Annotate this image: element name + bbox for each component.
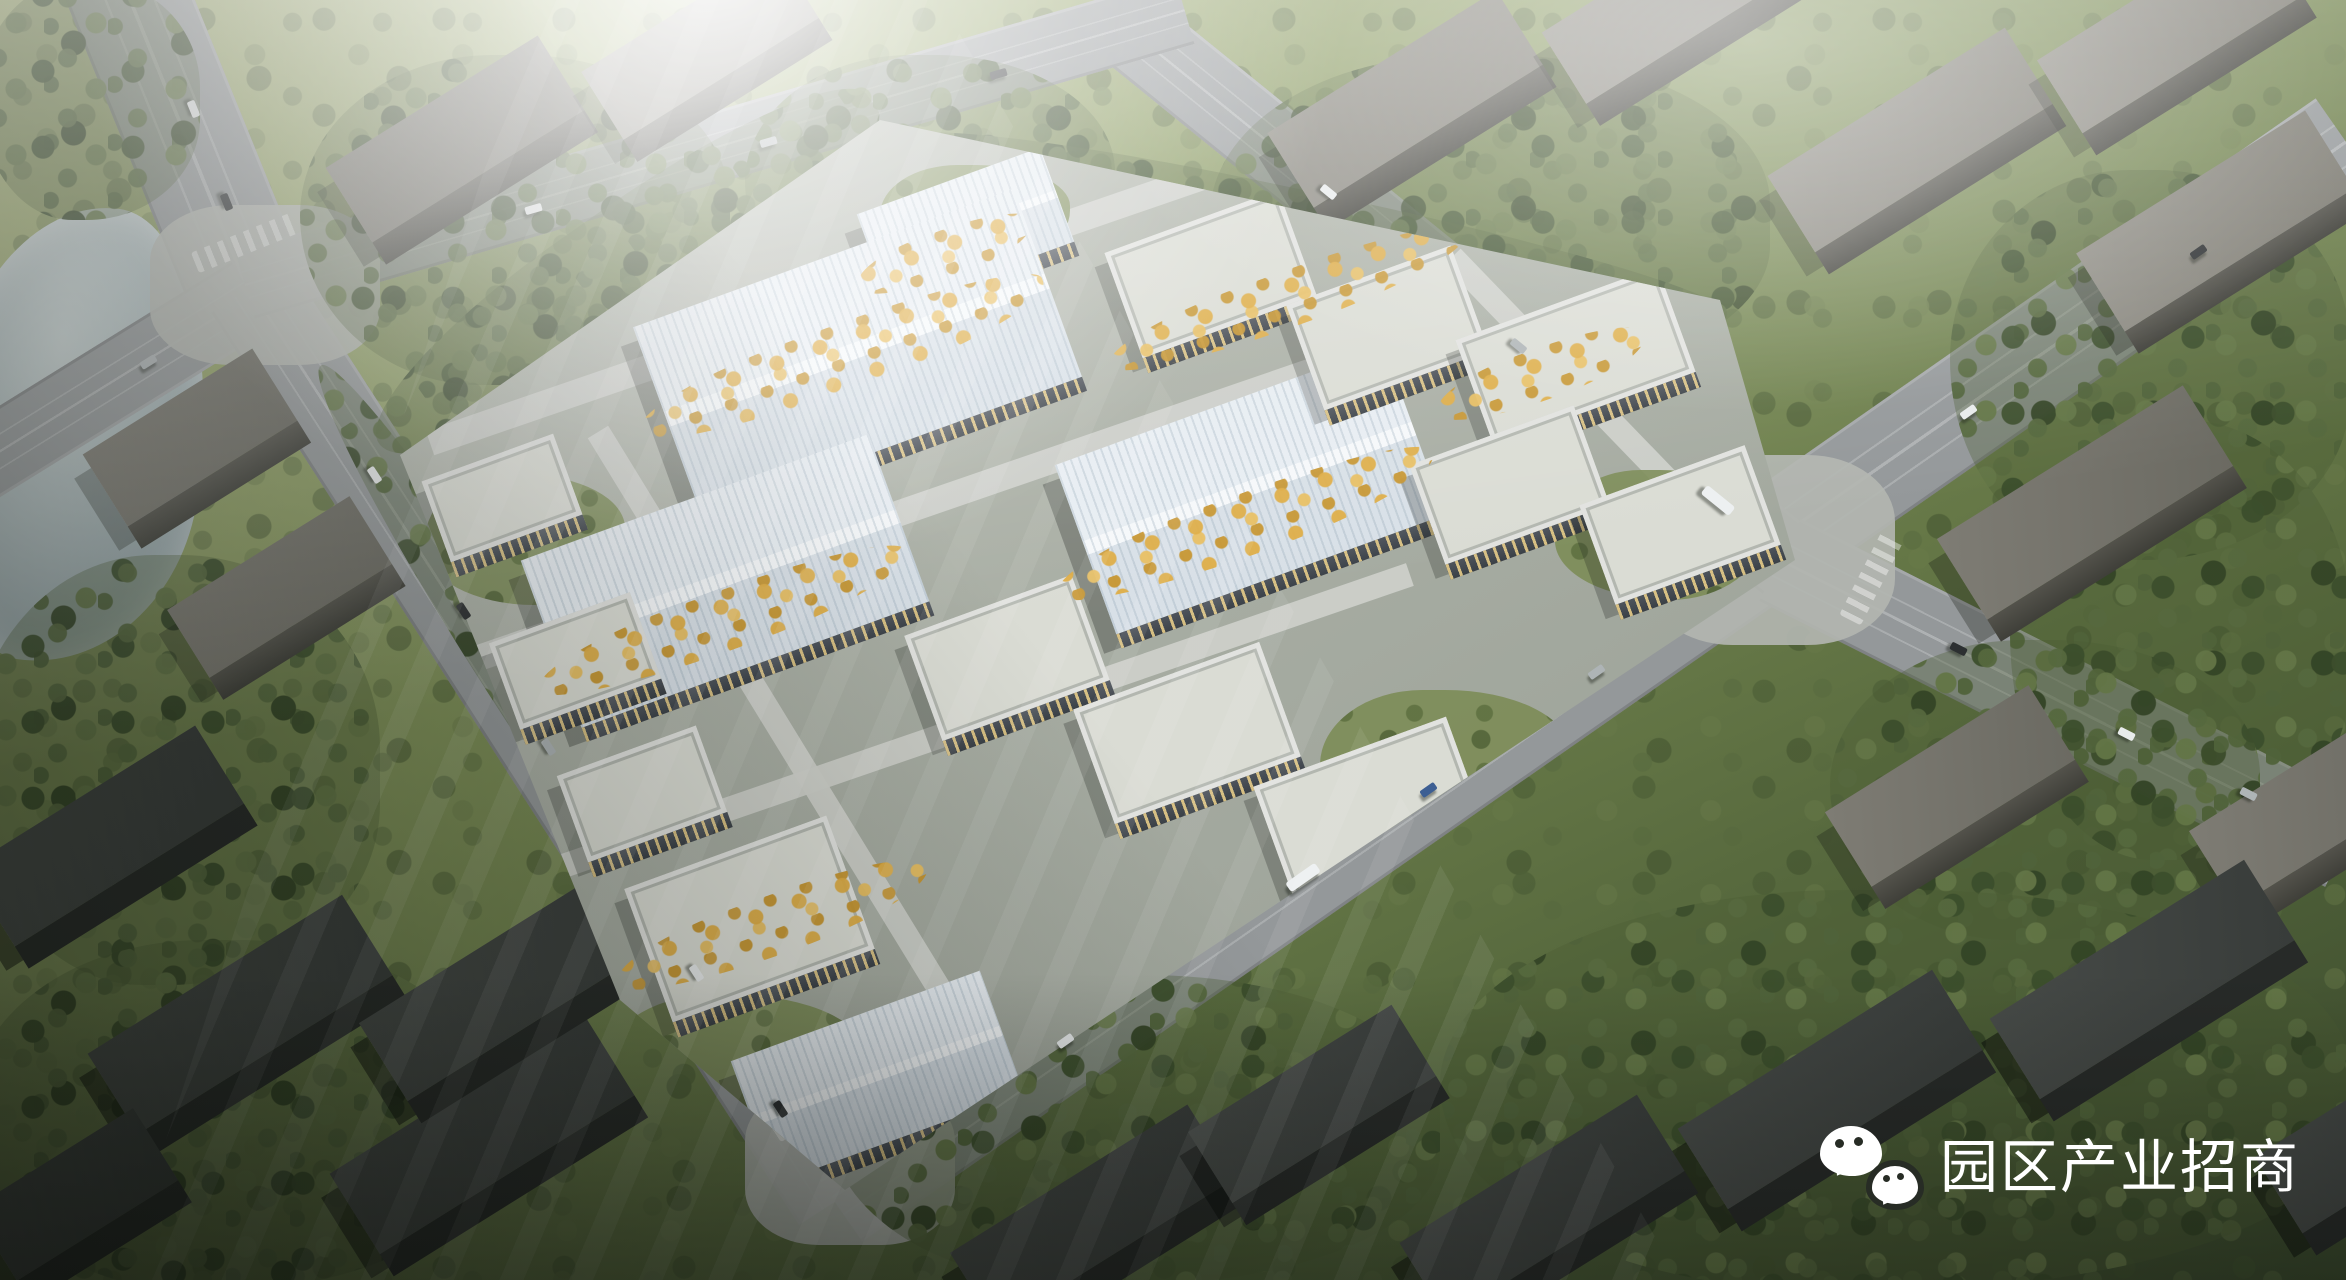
eye-dot <box>1854 1137 1863 1146</box>
flat-roof-building <box>1579 445 1781 605</box>
wechat-icon <box>1820 1124 1924 1212</box>
speech-bubble-small <box>1866 1160 1924 1210</box>
eye-dot <box>1835 1139 1844 1148</box>
watermark-text: 园区产业招商 <box>1940 1124 2300 1212</box>
forest-patch <box>0 0 200 220</box>
flat-roof-building <box>557 725 728 862</box>
eye-dot <box>1883 1175 1890 1182</box>
watermark: 园区产业招商 <box>1820 1124 2300 1212</box>
aerial-render-canvas: 园区产业招商 <box>0 0 2346 1280</box>
eye-dot <box>1897 1173 1904 1180</box>
